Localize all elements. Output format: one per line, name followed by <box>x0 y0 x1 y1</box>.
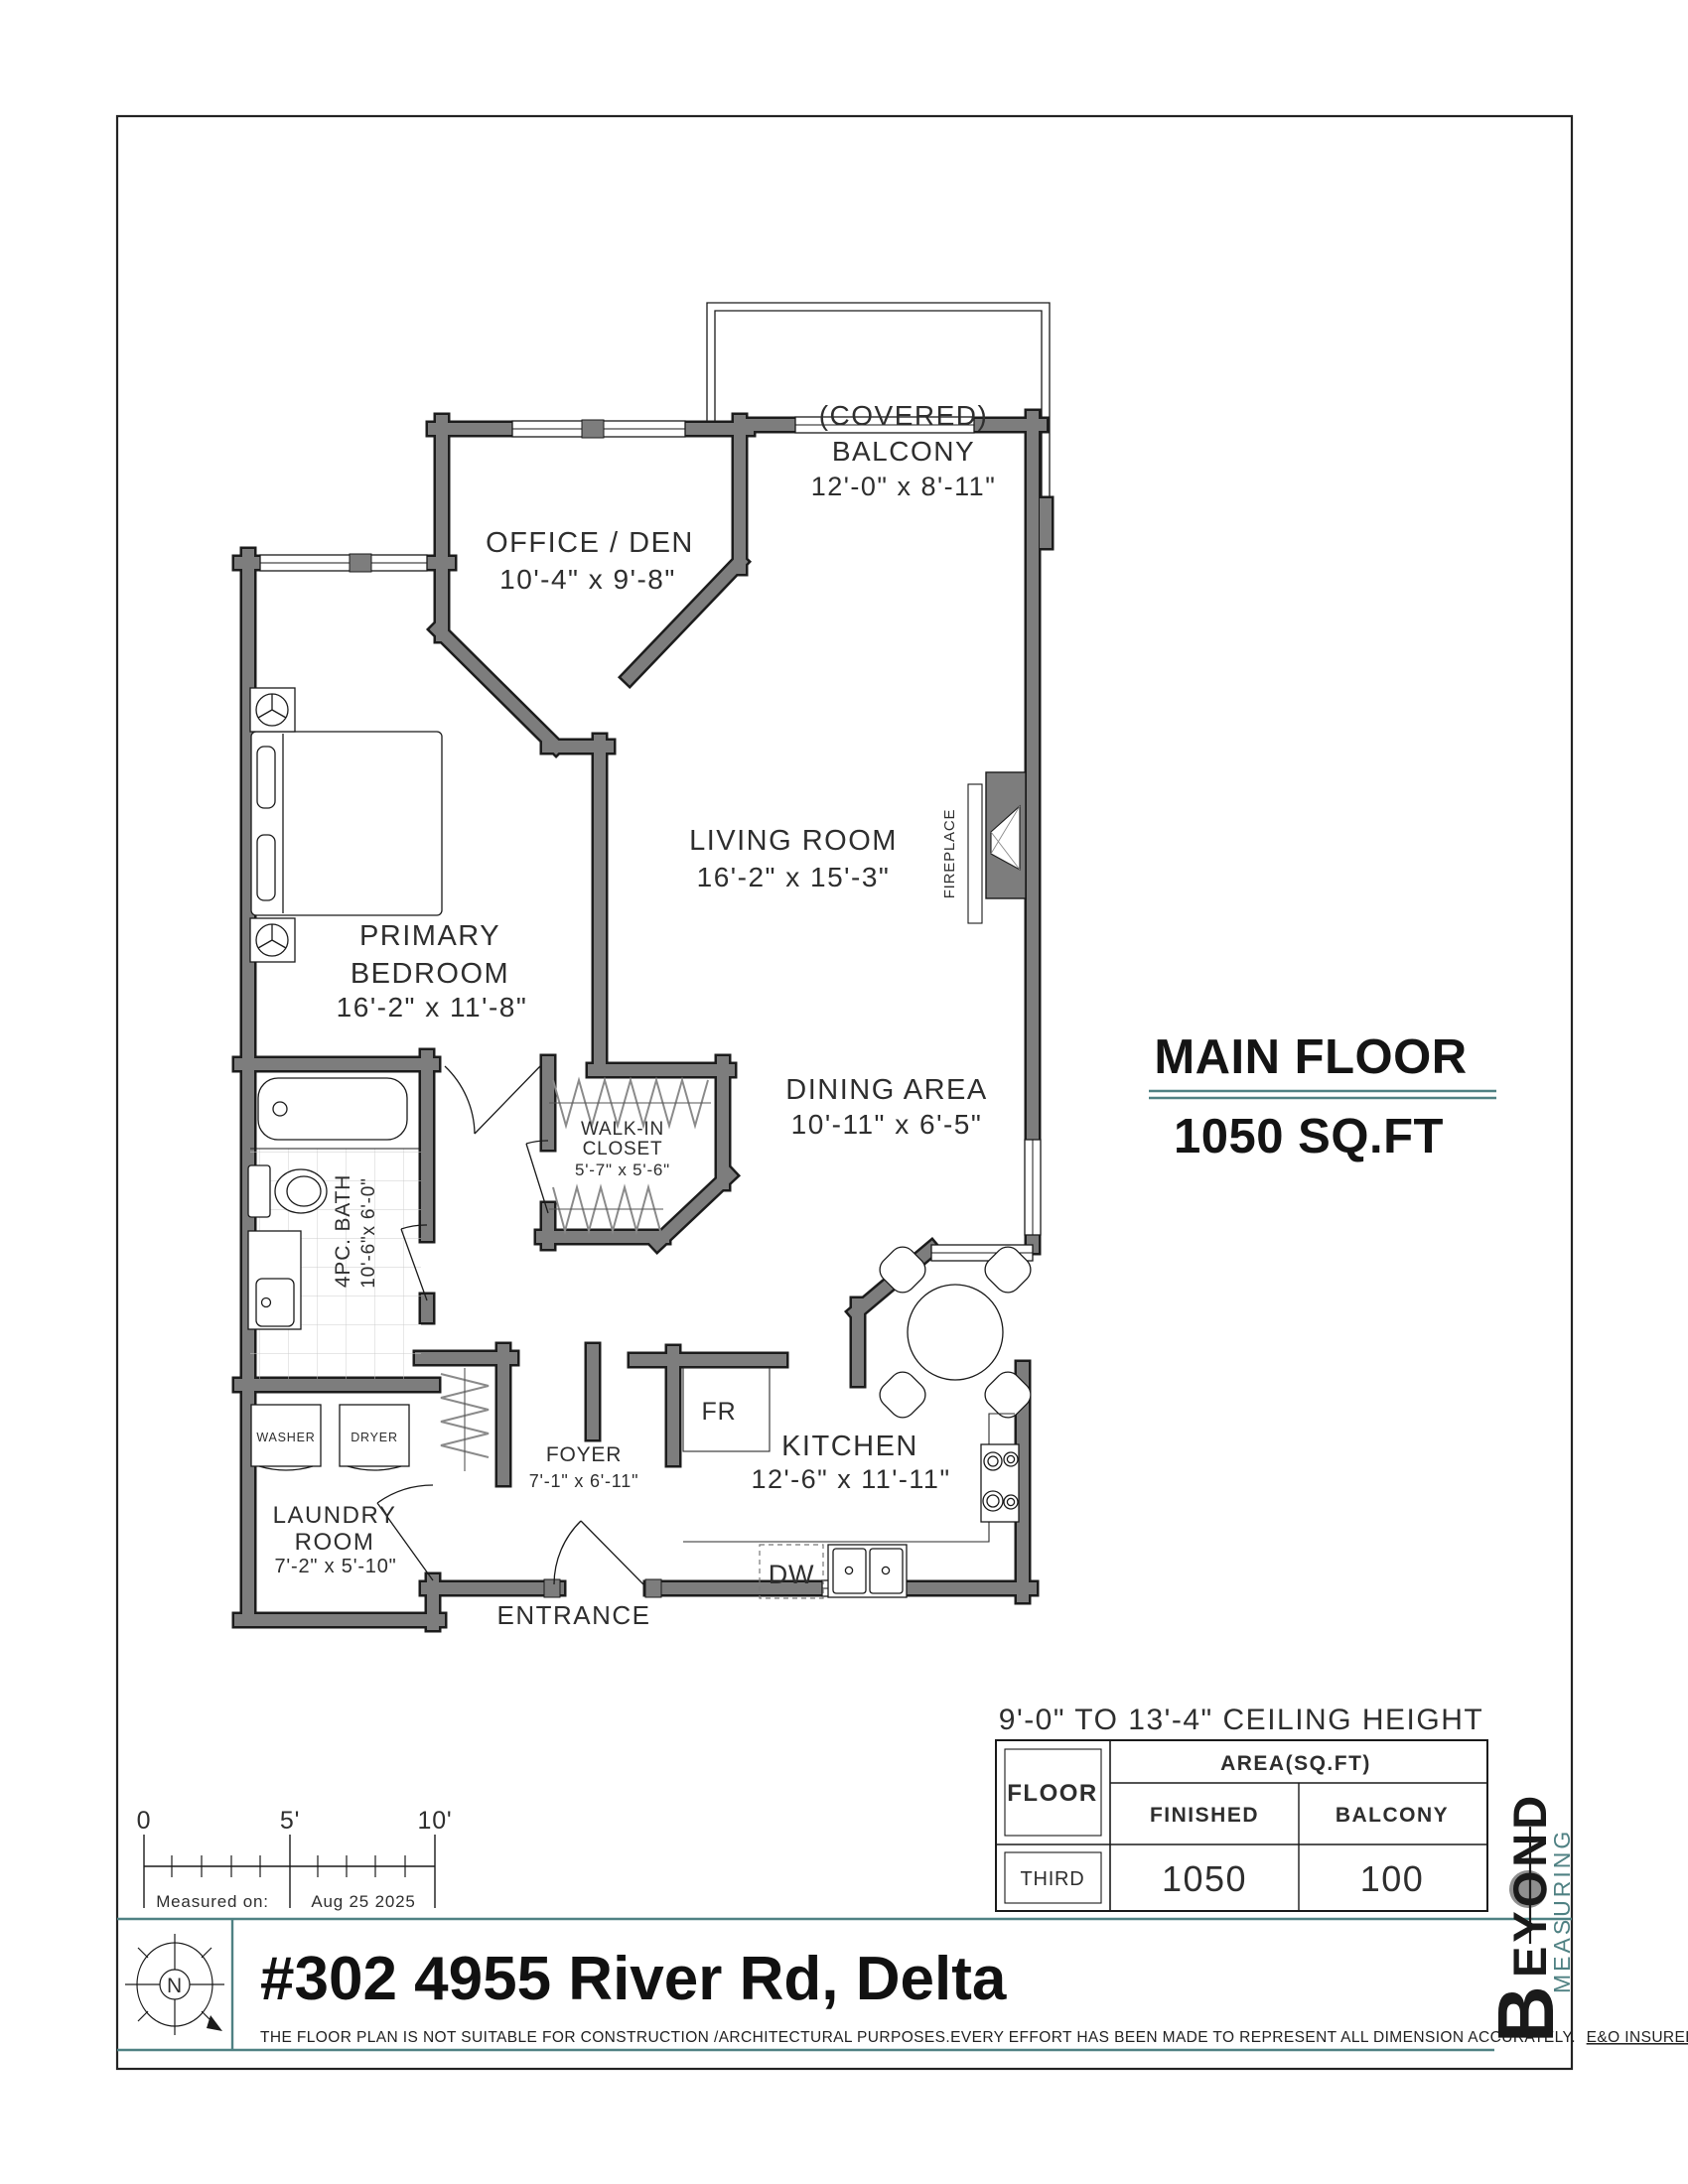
label-balcony: (COVERED) <box>819 400 989 431</box>
summary-floor: MAIN FLOOR <box>1154 1030 1467 1084</box>
area-table: FLOOR AREA(SQ.FT) FINISHED BALCONY THIRD… <box>996 1740 1487 1911</box>
toilet-icon <box>248 1165 327 1217</box>
summary-divider <box>1149 1091 1496 1098</box>
disclaimer-insured: E&O INSURED. <box>1587 2029 1688 2046</box>
label-bath: 4PC. BATH <box>332 1174 354 1288</box>
dining-table-icon <box>875 1242 1037 1424</box>
label-laundry: LAUNDRY <box>273 1502 397 1529</box>
table-finished-value: 1050 <box>1162 1858 1247 1899</box>
table-row-label: THIRD <box>1020 1868 1084 1890</box>
svg-text:16'-2" x 15'-3": 16'-2" x 15'-3" <box>697 862 891 892</box>
window-bedroom-top <box>260 554 427 572</box>
measured-on-date: Aug 25 2025 <box>311 1892 415 1911</box>
bed-icon <box>251 732 442 915</box>
beyond-measuring-logo: B EYOND MEASURING <box>1481 1792 1575 2043</box>
svg-text:CLOSET: CLOSET <box>583 1139 663 1160</box>
label-bedroom: PRIMARY <box>359 920 500 952</box>
entrance-post-right <box>645 1579 661 1597</box>
stove-icon <box>981 1444 1019 1522</box>
floorplan-page: (COVERED) BALCONY 12'-0" x 8'-11" OFFICE… <box>0 0 1688 2184</box>
label-washer: WASHER <box>256 1431 315 1444</box>
label-living: LIVING ROOM <box>689 825 898 857</box>
table-col-finished: FINISHED <box>1150 1804 1259 1827</box>
label-dw: DW <box>769 1560 815 1589</box>
svg-text:ROOM: ROOM <box>295 1529 375 1556</box>
label-kitchen: KITCHEN <box>781 1431 918 1462</box>
foyer-closet-hangers-icon <box>441 1368 489 1471</box>
page-title: #302 4955 River Rd, Delta <box>260 1945 1007 2013</box>
svg-text:12'-6" x 11'-11": 12'-6" x 11'-11" <box>751 1464 950 1494</box>
label-dining: DINING AREA <box>785 1074 987 1106</box>
scale-tick-5: 5' <box>280 1807 300 1835</box>
fireplace-icon <box>968 772 1026 923</box>
measured-on-label: Measured on: <box>156 1892 269 1911</box>
label-fr: FR <box>702 1398 737 1426</box>
svg-text:BALCONY: BALCONY <box>832 436 975 467</box>
svg-text:5'-7" x 5'-6": 5'-7" x 5'-6" <box>575 1160 670 1179</box>
window-dining-right <box>1025 1140 1041 1235</box>
scale-tick-0: 0 <box>137 1807 152 1835</box>
summary-area: 1050 SQ.FT <box>1174 1110 1444 1163</box>
vanity-sink-icon <box>248 1231 301 1329</box>
table-area-header: AREA(SQ.FT) <box>1220 1752 1371 1775</box>
svg-text:7'-1" x 6'-11": 7'-1" x 6'-11" <box>529 1471 639 1491</box>
bathtub-icon <box>258 1078 407 1140</box>
label-closet: WALK-IN <box>581 1119 664 1140</box>
kitchen-sink-icon <box>828 1545 907 1597</box>
label-fireplace: FIREPLACE <box>941 809 958 899</box>
svg-text:12'-0" x 8'-11": 12'-0" x 8'-11" <box>811 472 997 501</box>
svg-text:10'-4" x 9'-8": 10'-4" x 9'-8" <box>499 564 676 595</box>
entrance-door <box>554 1521 643 1584</box>
compass-letter: N <box>167 1975 183 1997</box>
label-office: OFFICE / DEN <box>486 527 694 559</box>
window-office-top <box>512 420 685 438</box>
ceiling-note: 9'-0" TO 13'-4" CEILING HEIGHT <box>999 1704 1483 1736</box>
entrance-post-left <box>544 1579 560 1597</box>
svg-text:7'-2" x 5'-10": 7'-2" x 5'-10" <box>274 1556 396 1577</box>
label-dryer: DRYER <box>351 1431 398 1444</box>
table-col-balcony: BALCONY <box>1336 1804 1449 1827</box>
north-arrow <box>207 2015 222 2031</box>
svg-text:10'-11" x 6'-5": 10'-11" x 6'-5" <box>791 1109 983 1140</box>
summary-block: MAIN FLOOR 1050 SQ.FT <box>1149 1030 1496 1163</box>
bedroom-door <box>445 1066 540 1134</box>
svg-text:16'-2" x 11'-8": 16'-2" x 11'-8" <box>337 992 528 1023</box>
label-entrance: ENTRANCE <box>496 1600 650 1630</box>
table-balcony-value: 100 <box>1360 1858 1425 1899</box>
floorplan-canvas: (COVERED) BALCONY 12'-0" x 8'-11" OFFICE… <box>0 0 1688 2184</box>
svg-text:BEDROOM: BEDROOM <box>351 958 509 990</box>
scale-tick-10: 10' <box>418 1807 453 1835</box>
disclaimer: THE FLOOR PLAN IS NOT SUITABLE FOR CONST… <box>260 2029 1688 2046</box>
label-foyer: FOYER <box>546 1443 622 1466</box>
table-floor-header: FLOOR <box>1007 1780 1098 1807</box>
svg-text:10'-6"x 6'-0": 10'-6"x 6'-0" <box>358 1177 379 1288</box>
logo-word2: MEASURING <box>1549 1829 1575 1993</box>
